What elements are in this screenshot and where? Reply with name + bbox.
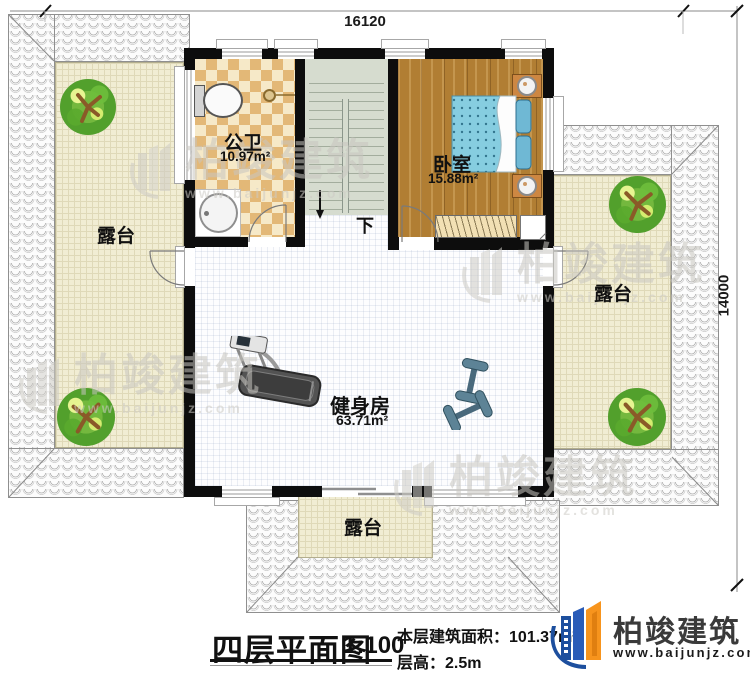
- floor-area-label: 本层建筑面积：: [397, 629, 509, 646]
- tree: [60, 79, 116, 135]
- floor-height-info: 层高：2.5m: [397, 649, 481, 673]
- dimension-height: 14000: [716, 261, 733, 331]
- window-frame: [424, 497, 526, 506]
- door-bedroom: [399, 237, 434, 250]
- window-north-bedroom-2: [505, 48, 542, 59]
- window-frame: [501, 39, 546, 49]
- tree: [608, 388, 666, 446]
- window-frame: [381, 39, 429, 49]
- window-south-1: [222, 486, 272, 497]
- window-south-2: [432, 486, 518, 497]
- window-north-bathroom: [222, 48, 262, 59]
- closet: [435, 215, 517, 238]
- window-north-bedroom-1: [385, 48, 425, 59]
- wall-bathroom-east: [295, 48, 305, 247]
- floor-plan: 柏竣建筑 www.baijunjz.com 柏竣建筑 www.baijunjz.…: [0, 0, 750, 676]
- floor-height-value: 2.5m: [445, 655, 481, 672]
- wall-stair-bedroom: [388, 48, 398, 250]
- dimension-width: 16120: [330, 13, 400, 30]
- roof-left: [8, 14, 55, 498]
- floor-drain: [263, 89, 276, 102]
- stairs-down-label: 下: [356, 212, 374, 238]
- sink: [199, 193, 238, 233]
- window-north-stairs: [278, 48, 314, 59]
- door-frame: [553, 246, 563, 288]
- tree: [57, 388, 115, 446]
- roof-bottom-left: [8, 448, 184, 498]
- terrace-left-label: 露台: [97, 221, 135, 248]
- bathroom-area: 10.97m²: [220, 149, 270, 164]
- treadmill: [220, 336, 332, 432]
- wall-bathroom-south: [184, 237, 305, 247]
- toilet: [203, 83, 243, 118]
- gym-area: 63.71m²: [336, 412, 388, 428]
- company-logo-icon: [548, 598, 610, 670]
- window-frame: [553, 96, 564, 172]
- roof-bottom-right: [542, 449, 719, 506]
- terrace-bottom-label: 露台: [344, 513, 382, 540]
- window-frame: [214, 497, 280, 506]
- stair-stringer: [342, 99, 349, 213]
- door-bathroom: [248, 237, 286, 247]
- door-west-terrace: [184, 248, 195, 286]
- terrace-right-label: 露台: [594, 279, 632, 306]
- floor-height-label: 层高：: [397, 655, 445, 672]
- door-frame: [175, 246, 185, 288]
- company-logo-website: www.baijunjz.com: [613, 645, 750, 660]
- window-frame: [174, 66, 185, 184]
- title-underline-thin: [210, 665, 392, 666]
- floor-mat: [520, 215, 546, 240]
- sliding-door-south: [322, 486, 412, 497]
- dumbbells: [436, 358, 508, 430]
- title-underline: [210, 659, 392, 662]
- tree: [609, 176, 666, 233]
- bedroom-area: 15.88m²: [428, 171, 478, 186]
- window-frame: [274, 39, 318, 49]
- stairwell-floor: [305, 59, 388, 215]
- drawing-scale: 1:100: [343, 632, 404, 660]
- window-frame: [216, 39, 268, 49]
